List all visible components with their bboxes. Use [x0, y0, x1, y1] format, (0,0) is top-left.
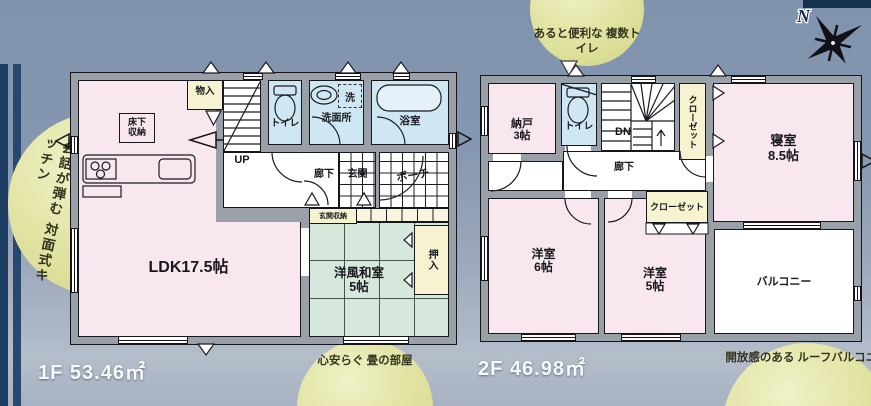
floorplan-2f: 納戸 3帖 トイレ DN 廊下 クローゼット 寝室 8.5帖 クローゼット 洋室…: [480, 75, 862, 342]
label-closet-south-wrap: クローゼット: [646, 191, 708, 223]
window-2f-top-bedroom: [731, 76, 766, 83]
callout-toilets: あると便利な 複数トイレ: [530, 0, 644, 66]
label-bedroom: 寝室 8.5帖: [713, 134, 854, 163]
floorplan-advertisement: 会話が弾む 対面式キッチン あると便利な 複数トイレ 心安らぐ 畳の部屋 開放感…: [0, 0, 871, 406]
window-2f-bedroom-balcony: [743, 222, 821, 229]
label-up: UP: [223, 154, 261, 166]
room-toilet-2f: [561, 83, 597, 146]
window-1f-tatami-bottom: [343, 336, 409, 344]
area-label-1f: 1F 53.46㎡: [38, 356, 146, 385]
callout-balcony-line2: ルーフバルコニー: [798, 352, 871, 364]
window-2f-west5-bottom: [621, 334, 681, 341]
label-bedroom-name: 寝室: [713, 134, 854, 149]
underfloor-line2: 収納: [128, 128, 146, 138]
label-closet-south: クローゼット: [650, 202, 704, 212]
label-toilet-1f: トイレ: [268, 119, 302, 130]
compass-north-label: N: [796, 6, 811, 26]
entrance-storage-cells: [355, 208, 449, 222]
label-bath: 浴室: [371, 116, 449, 128]
window-1f-kitchen: [71, 136, 78, 154]
floorplan-1f: 玄関収納: [70, 72, 457, 345]
room-bathroom: [371, 80, 449, 145]
window-1f-ldk-bottom: [118, 336, 188, 344]
window-2f-bedroom-right: [854, 141, 861, 181]
label-nando-size: 3帖: [488, 130, 556, 142]
label-tatami-size: 5帖: [309, 280, 409, 294]
label-tatami-name: 洋風和室: [309, 266, 409, 280]
left-navy-stripe-1: [0, 64, 8, 406]
label-washroom: 洗面所: [309, 113, 364, 124]
window-1f-top-2: [335, 73, 361, 80]
callout-tatami-text: 心安らぐ 畳の部屋: [297, 354, 433, 369]
label-oshiire: 押入: [426, 249, 437, 271]
label-closet-north-wrap: クローゼット: [679, 83, 706, 160]
label-monoire: 物入: [187, 87, 223, 98]
label-toilet-2f: トイレ: [561, 122, 597, 133]
entrance-storage-box: 玄関収納: [309, 208, 357, 224]
underfloor-storage-box: 床下 収納: [119, 113, 155, 143]
window-1f-top-3: [393, 73, 410, 80]
label-nando-name: 納戸: [488, 118, 556, 130]
callout-toilets-line1: あると便利な: [534, 28, 603, 40]
callout-balcony-text: 開放感のある ルーフバルコニー: [722, 351, 871, 366]
window-1f-right: [449, 133, 456, 149]
label-west6: 洋室 6帖: [488, 248, 599, 275]
stairs-1f: [223, 80, 261, 152]
callout-tatami-line1: 心安らぐ: [317, 355, 363, 367]
label-washer: 洗: [345, 89, 355, 104]
window-1f-top-1: [243, 73, 263, 80]
label-oshiire-wrap: 押入: [414, 225, 449, 295]
entrance-storage-label: 玄関収納: [319, 211, 347, 221]
top-right-navy-bar: [803, 0, 871, 8]
label-closet-north: クローゼット: [687, 95, 697, 149]
area-label-2f: 2F 46.98㎡: [478, 352, 586, 381]
window-2f-west6-left: [481, 236, 488, 281]
label-west5-size: 5帖: [604, 280, 706, 293]
label-balcony: バルコニー: [714, 276, 854, 288]
window-2f-nando: [481, 106, 488, 136]
compass-rose-icon: [791, 0, 871, 79]
window-1f-ldk-left: [71, 228, 78, 293]
label-ldk: LDK17.5帖: [101, 259, 276, 277]
callout-balcony-line1: 開放感のある: [725, 352, 794, 364]
label-nando: 納戸 3帖: [488, 118, 556, 143]
stairs-2f: [601, 83, 675, 151]
window-2f-top-stairs: [631, 76, 656, 83]
label-west5: 洋室 5帖: [604, 267, 706, 294]
callout-tatami: 心安らぐ 畳の部屋: [297, 340, 433, 406]
label-west6-size: 6帖: [488, 261, 599, 274]
washer-box: 洗: [338, 84, 362, 108]
callout-roof-balcony: 開放感のある ルーフバルコニー: [722, 343, 871, 406]
label-tatami: 洋風和室 5帖: [309, 266, 409, 294]
hallway-2f-b: [488, 161, 563, 191]
callout-kit-text: 会話が弾む 対面式キッチン: [9, 135, 78, 290]
window-2f-west6-bottom: [521, 334, 576, 341]
label-bedroom-size: 8.5帖: [713, 149, 854, 164]
label-hallway-2f: 廊下: [606, 162, 642, 173]
label-hallway-1f: 廊下: [307, 169, 341, 180]
callout-toilets-text: あると便利な 複数トイレ: [530, 27, 644, 57]
room-toilet-1f: [268, 80, 302, 145]
label-entrance: 玄関: [339, 169, 376, 180]
label-dn: DN: [603, 126, 643, 138]
window-2f-balcony-right: [854, 286, 861, 301]
callout-tatami-line2: 畳の部屋: [367, 355, 413, 367]
